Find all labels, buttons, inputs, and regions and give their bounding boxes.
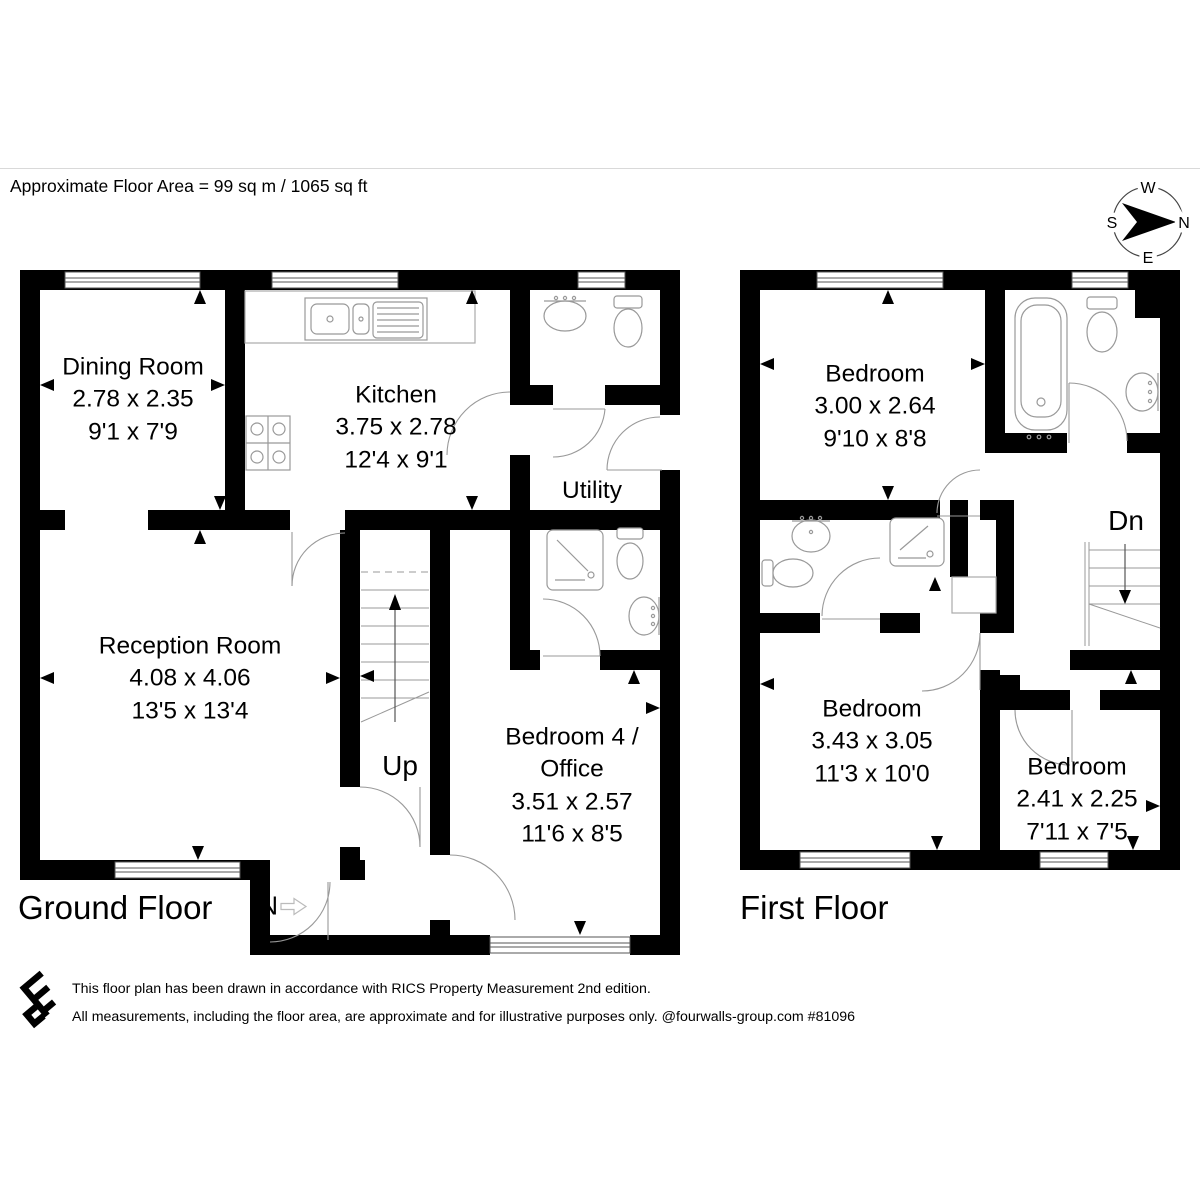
landing-cupboard [952,577,996,613]
shower-room-basin [629,597,659,635]
room-label-bedroom4-office: Bedroom 4 / Office 3.51 x 2.57 11'6 x 8'… [505,721,638,850]
room-name: Utility [562,475,622,507]
room-name: Kitchen [335,380,456,412]
hob-icon [246,416,290,470]
compass-needle [1122,203,1176,241]
floorplan-page: Approximate Floor Area = 99 sq m / 1065 … [0,0,1200,1200]
stairs-up-arrow [389,594,401,722]
room-name: Bedroom [1016,752,1137,784]
room-label-bedroom2: Bedroom 3.43 x 3.05 11'3 x 10'0 [811,694,932,791]
ground-floor-title: Ground Floor [18,889,212,927]
room-label-bedroom1: Bedroom 3.00 x 2.64 9'10 x 8'8 [814,359,935,456]
room-dim-metric: 2.41 x 2.25 [1016,784,1137,816]
shower-room-toilet [617,528,643,579]
compass-e: E [1143,250,1154,267]
shower-tray [547,530,603,590]
stairs-down-label: Dn [1108,505,1144,537]
room-dim-metric: 3.75 x 2.78 [335,412,456,444]
bathtub [1015,298,1067,439]
room-dim-imperial: 7'11 x 7'5 [1016,816,1137,848]
ensuite-shower-tray [890,518,944,566]
room-dim-metric: 3.51 x 2.57 [505,786,638,818]
bathroom-toilet [1087,297,1117,352]
room-label-reception: Reception Room 4.08 x 4.06 13'5 x 13'4 [99,631,281,728]
room-name: Bedroom 4 / [505,721,638,753]
room-dim-metric: 2.78 x 2.35 [62,384,204,416]
compass-n: N [1178,215,1190,232]
room-name: Dining Room [62,352,204,384]
ensuite-basin [792,516,830,552]
compass-w: W [1140,180,1156,197]
ensuite-toilet [762,559,813,587]
stairs-up-label: Up [382,750,418,782]
room-dim-metric: 3.00 x 2.64 [814,391,935,423]
entrance-text: IN [252,891,278,922]
room-dim-imperial: 11'3 x 10'0 [811,758,932,790]
room-dim-imperial: 11'6 x 8'5 [505,818,638,850]
room-name: Office [505,754,638,786]
room-label-kitchen: Kitchen 3.75 x 2.78 12'4 x 9'1 [335,380,456,477]
room-dim-imperial: 12'4 x 9'1 [335,444,456,476]
compass-icon: W N E S [1100,174,1196,270]
room-dim-metric: 3.43 x 3.05 [811,726,932,758]
bathroom-basin [1126,373,1158,411]
room-label-utility: Utility [562,475,622,507]
compass-s: S [1107,215,1118,232]
room-dim-metric: 4.08 x 4.06 [99,663,281,695]
wc-basin [544,296,586,331]
kitchen-sink [305,298,427,340]
room-name: Bedroom [814,359,935,391]
stairs-down-arrow [1119,544,1131,604]
disclaimer-line-1: This floor plan has been drawn in accord… [72,981,651,997]
entrance-arrow-icon [280,897,308,915]
wc-toilet [614,296,642,347]
divider [0,168,1200,169]
fourwalls-logo [6,966,64,1036]
room-name: Reception Room [99,631,281,663]
room-label-bedroom3: Bedroom 2.41 x 2.25 7'11 x 7'5 [1016,752,1137,849]
entrance-label: IN [252,891,308,922]
room-dim-imperial: 9'1 x 7'9 [62,416,204,448]
room-name: Bedroom [811,694,932,726]
disclaimer-line-2: All measurements, including the floor ar… [72,1009,855,1025]
floor-area-label: Approximate Floor Area = 99 sq m / 1065 … [10,176,367,197]
room-dim-imperial: 13'5 x 13'4 [99,695,281,727]
room-dim-imperial: 9'10 x 8'8 [814,423,935,455]
room-label-dining: Dining Room 2.78 x 2.35 9'1 x 7'9 [62,352,204,449]
first-floor-title: First Floor [740,889,889,927]
